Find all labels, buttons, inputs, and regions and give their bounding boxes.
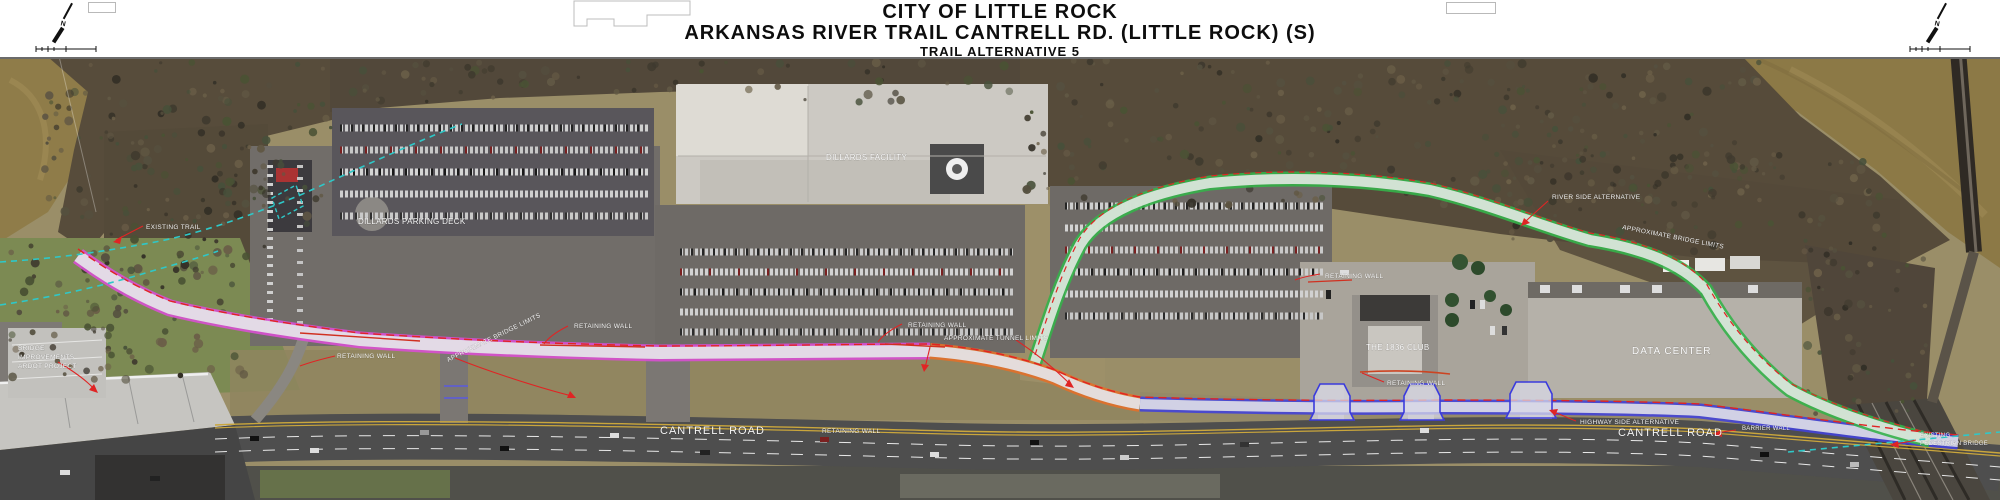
label-data-center: DATA CENTER [1632,346,1712,357]
scale-bar-icon [36,46,96,52]
title-line-1: CITY OF LITTLE ROCK [0,2,2000,23]
title-block: CITY OF LITTLE ROCK ARKANSAS RIVER TRAIL… [0,2,2000,59]
label-retaining-wall-5: RETAINING WALL [1387,380,1445,387]
label-existing-trail: EXISTING TRAIL [146,224,201,231]
label-cantrell-road-2: CANTRELL ROAD [1618,427,1723,439]
north-arrow-icon: N [54,1,73,44]
label-dillards-parking-deck: DILLARDS PARKING DECK [358,217,466,226]
label-retaining-wall-3: RETAINING WALL [908,322,966,329]
label-approx-tunnel-limits: APPROXIMATE TUNNEL LIMITS [944,335,1049,342]
label-bridge-improvements-1: BRIDGE [18,345,45,352]
label-existing-ped-bridge-2: PEDESTRIAN BRIDGE [1920,441,1988,447]
north-arrow-icon: N [1928,1,1947,44]
aerial-map: EXISTING TRAIL BRIDGE IMPROVEMENTS ARDOT… [0,0,2000,500]
north-arrow-scale-right: N [1892,0,1982,56]
header-band: CITY OF LITTLE ROCK ARKANSAS RIVER TRAIL… [0,0,2000,59]
label-barrier-wall: BARRIER WALL [1742,426,1790,432]
label-1836-club: THE 1836 CLUB [1366,343,1429,352]
revision-box-left [88,2,116,13]
label-retaining-wall-4: RETAINING WALL [1325,273,1383,280]
label-retaining-wall-1: RETAINING WALL [337,353,395,360]
revision-box-right [1446,2,1496,14]
svg-text:N: N [1934,20,1940,28]
label-cantrell-road-1: CANTRELL ROAD [660,425,765,437]
label-bridge-improvements-3: ARDOT PROJECT [18,363,77,370]
title-line-2: ARKANSAS RIVER TRAIL CANTRELL RD. (LITTL… [0,23,2000,44]
club-1836-building [1352,295,1438,387]
label-highway-side-alternative: HIGHWAY SIDE ALTERNATIVE [1580,419,1680,426]
plan-sheet: EXISTING TRAIL BRIDGE IMPROVEMENTS ARDOT… [0,0,2000,500]
label-retaining-wall-2: RETAINING WALL [574,323,632,330]
label-river-side-alternative: RIVER SIDE ALTERNATIVE [1552,194,1641,201]
label-retaining-wall-6: RETAINING WALL [822,428,880,435]
svg-text:N: N [60,20,66,28]
label-dillards-facility: DILLARDS FACILITY [826,153,907,162]
title-line-3: TRAIL ALTERNATIVE 5 [0,44,2000,59]
label-bridge-improvements-2: IMPROVEMENTS [18,354,75,361]
keymap-outline [560,0,700,36]
label-existing-ped-bridge-1: EXISTING [1920,433,1950,439]
scale-bar-icon [1910,46,1970,52]
